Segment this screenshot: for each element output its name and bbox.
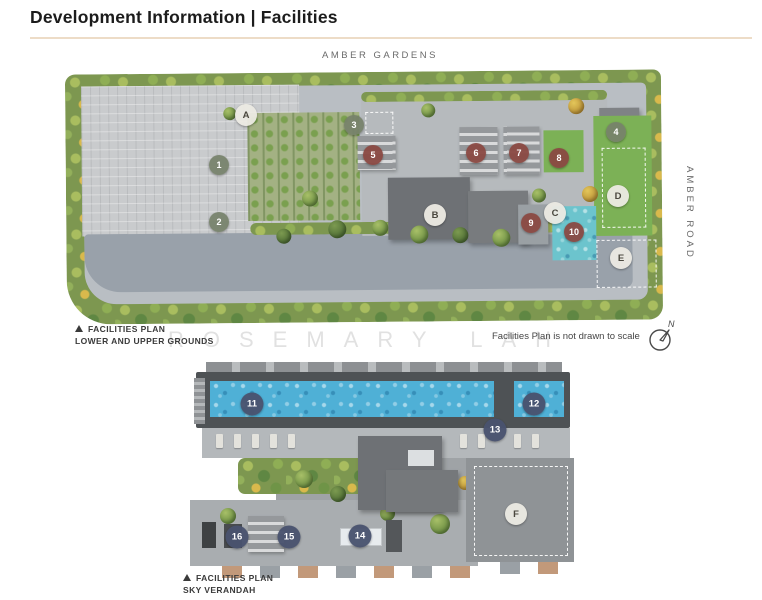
- rooftop-unit: [408, 450, 434, 466]
- plan-marker-1: 1: [209, 155, 229, 175]
- brochure-page: Development Information | Facilities AMB…: [0, 0, 762, 600]
- plan-marker-C: C: [544, 202, 566, 224]
- plan-lower-caption-title: FACILITIES PLAN: [88, 324, 165, 334]
- plan-marker-2: 2: [209, 212, 229, 232]
- balcony-tab: [412, 566, 432, 578]
- page-title: Development Information | Facilities: [30, 7, 338, 28]
- tree: [372, 220, 388, 236]
- header-divider: [30, 37, 752, 39]
- plan-marker-5: 5: [363, 145, 383, 165]
- balcony-tab: [374, 566, 394, 578]
- plan-marker-13: 13: [484, 419, 507, 442]
- plan-marker-B: B: [424, 204, 446, 226]
- plan-marker-9: 9: [521, 213, 541, 233]
- lounge-chair: [270, 434, 277, 448]
- stairs: [194, 378, 205, 424]
- lounge-chair: [288, 434, 295, 448]
- tree: [430, 514, 450, 534]
- north-compass-icon: N: [646, 318, 680, 361]
- plan-marker-8: 8: [549, 148, 569, 168]
- scale-footnote: Facilities Plan is not drawn to scale: [492, 331, 640, 342]
- lounge-chair: [514, 434, 521, 448]
- lounge-chair: [234, 434, 241, 448]
- plan-marker-14: 14: [349, 525, 372, 548]
- road-label-amber-gardens: AMBER GARDENS: [280, 50, 480, 61]
- plan-marker-E: E: [610, 247, 632, 269]
- plan-marker-11: 11: [241, 393, 264, 416]
- plan-marker-15: 15: [278, 526, 301, 549]
- lounge-chair: [460, 434, 467, 448]
- plan-lower-caption: FACILITIES PLAN LOWER AND UPPER GROUNDS: [75, 324, 214, 347]
- balcony-tab: [298, 566, 318, 578]
- plan-marker-4: 4: [606, 122, 626, 142]
- tree: [276, 229, 291, 244]
- plan-lower-caption-subtitle: LOWER AND UPPER GROUNDS: [75, 336, 214, 348]
- tree: [568, 98, 584, 114]
- garden-plots: [247, 112, 360, 221]
- lounge-chair: [478, 434, 485, 448]
- plan-marker-16: 16: [226, 526, 249, 549]
- tree: [328, 220, 346, 238]
- lounge-chair: [532, 434, 539, 448]
- gym-equipment: [202, 522, 216, 548]
- tree: [452, 227, 468, 243]
- rooftop-structure: [386, 470, 458, 512]
- triangle-icon: [183, 574, 191, 581]
- plan-sky-caption-subtitle: SKY VERANDAH: [183, 585, 273, 597]
- facilities-plan-lower: ABCDE12345678910: [64, 70, 664, 326]
- tree: [295, 470, 313, 488]
- road-label-amber-road: AMBER ROAD: [684, 166, 695, 296]
- plan-marker-10: 10: [564, 222, 584, 242]
- tree: [302, 190, 318, 206]
- plan-sky-caption: FACILITIES PLAN SKY VERANDAH: [183, 573, 273, 596]
- balcony-tab: [450, 566, 470, 578]
- plan-marker-7: 7: [509, 143, 529, 163]
- tree: [410, 225, 428, 243]
- tree: [220, 508, 236, 524]
- facilities-plan-sky: 111213141516F: [180, 360, 585, 598]
- rooftop-unit: [386, 520, 402, 552]
- balcony-tab: [336, 566, 356, 578]
- tree: [421, 103, 435, 117]
- driveway: [84, 230, 632, 293]
- plan-marker-3: 3: [344, 115, 364, 135]
- lounge-chair: [252, 434, 259, 448]
- lounge-chair: [216, 434, 223, 448]
- balcony-tab: [500, 562, 520, 574]
- plan-marker-F: F: [505, 503, 527, 525]
- tree: [492, 229, 510, 247]
- balcony-tab: [538, 562, 558, 574]
- plan-marker-D: D: [607, 185, 629, 207]
- plan-sky-caption-title: FACILITIES PLAN: [196, 573, 273, 583]
- plan-marker-6: 6: [466, 143, 486, 163]
- site-tree-border: [65, 69, 663, 324]
- tree: [532, 188, 546, 202]
- tree: [330, 486, 346, 502]
- plan-marker-A: A: [235, 104, 257, 126]
- plan-marker-12: 12: [523, 393, 546, 416]
- dashed-zone: [365, 112, 393, 134]
- north-label: N: [668, 319, 675, 329]
- tree: [582, 186, 598, 202]
- triangle-icon: [75, 325, 83, 332]
